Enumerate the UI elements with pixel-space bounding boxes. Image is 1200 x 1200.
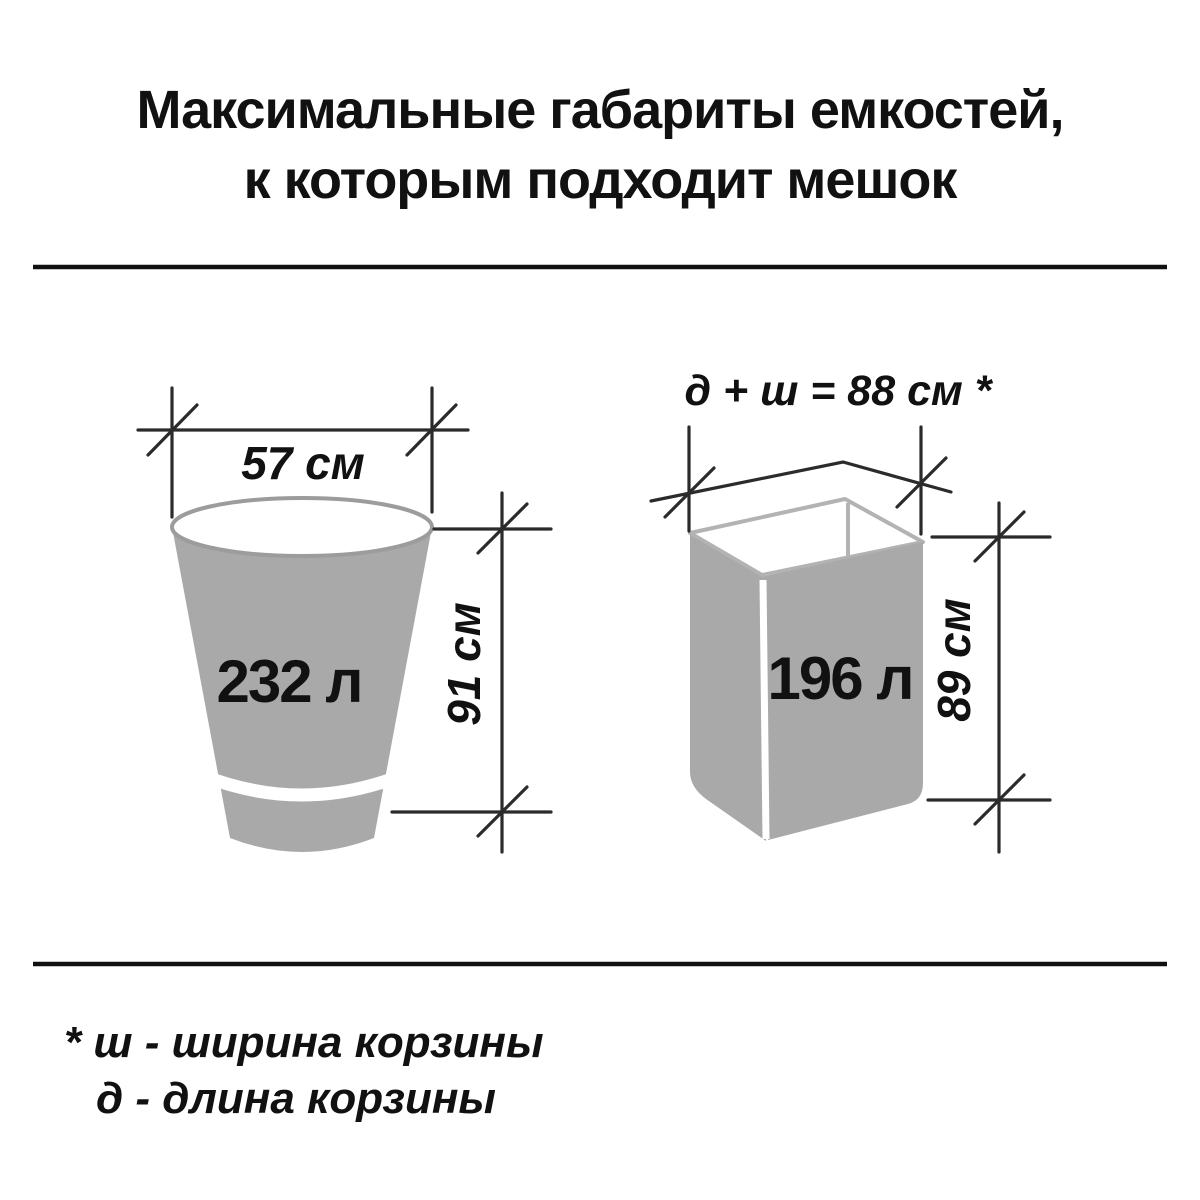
basket-figure: 196 л	[690, 499, 923, 841]
bucket-rim	[172, 498, 432, 556]
title-line-1: Максимальные габариты емкостей,	[137, 80, 1064, 140]
footnote-line-2: д - длина корзины	[96, 1074, 496, 1123]
bucket-height-label: 91 см	[438, 602, 490, 726]
infographic-page: Максимальные габариты емкостей, к которы…	[0, 0, 1200, 1200]
basket-formula-label: д + ш = 88 см *	[684, 367, 993, 415]
basket-volume-label: 196 л	[768, 645, 913, 712]
basket-height-label: 89 см	[928, 598, 980, 722]
footnote-line-1: * ш - ширина корзины	[64, 1018, 544, 1067]
bucket-width-label: 57 см	[241, 437, 365, 489]
title-line-2: к которым подходит мешок	[244, 150, 959, 210]
basket-front-edge-highlight	[763, 580, 766, 839]
basket-left-face	[690, 535, 766, 841]
bucket-volume-label: 232 л	[217, 648, 362, 715]
dimensions-diagram: Максимальные габариты емкостей, к которы…	[0, 0, 1200, 1200]
